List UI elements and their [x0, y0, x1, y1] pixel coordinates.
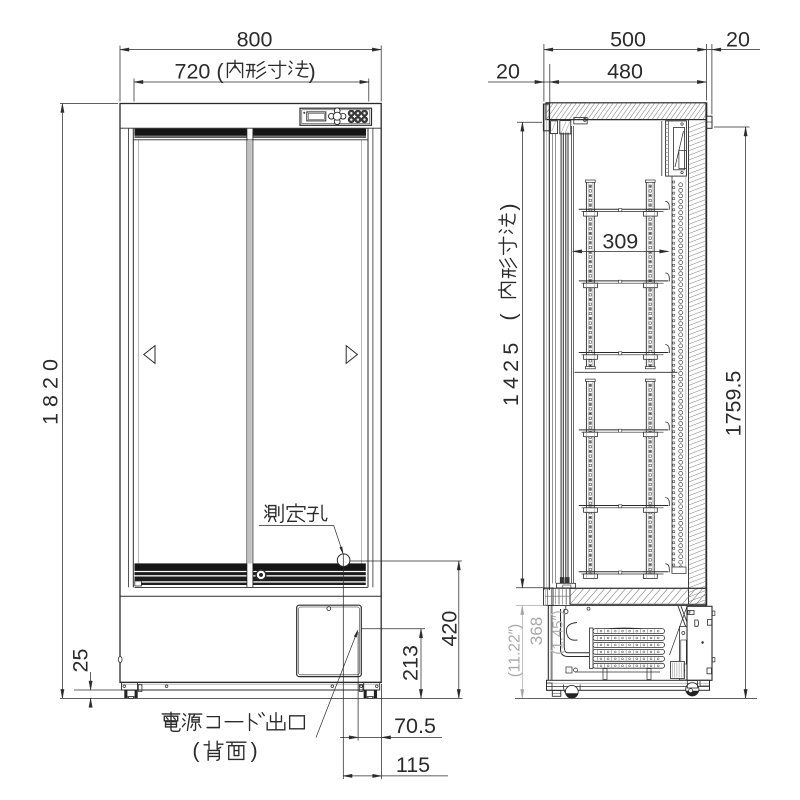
svg-text:1820: 1820	[39, 353, 63, 425]
svg-text:): )	[309, 59, 316, 83]
svg-text:213: 213	[399, 645, 423, 681]
svg-text:(: (	[192, 739, 200, 763]
svg-text:115: 115	[396, 753, 430, 777]
svg-text:20: 20	[496, 59, 520, 83]
svg-text:(11.22″): (11.22″)	[507, 624, 524, 677]
svg-text:(: (	[497, 313, 521, 321]
svg-text:): )	[251, 739, 258, 763]
svg-text:20: 20	[726, 27, 750, 51]
svg-text:1759.5: 1759.5	[722, 371, 746, 437]
svg-text:70.5: 70.5	[394, 714, 436, 738]
svg-text:25: 25	[69, 649, 93, 673]
svg-text:): )	[497, 203, 521, 210]
svg-text:(1.45″): (1.45″)	[550, 610, 567, 655]
svg-text:309: 309	[602, 230, 638, 254]
svg-text:1425: 1425	[499, 337, 523, 406]
svg-text:420: 420	[438, 611, 462, 647]
svg-text:800: 800	[237, 27, 273, 51]
svg-text:368: 368	[527, 617, 546, 645]
svg-text:500: 500	[610, 27, 646, 51]
svg-text:480: 480	[607, 59, 643, 83]
svg-text:720 (: 720 (	[174, 59, 224, 83]
